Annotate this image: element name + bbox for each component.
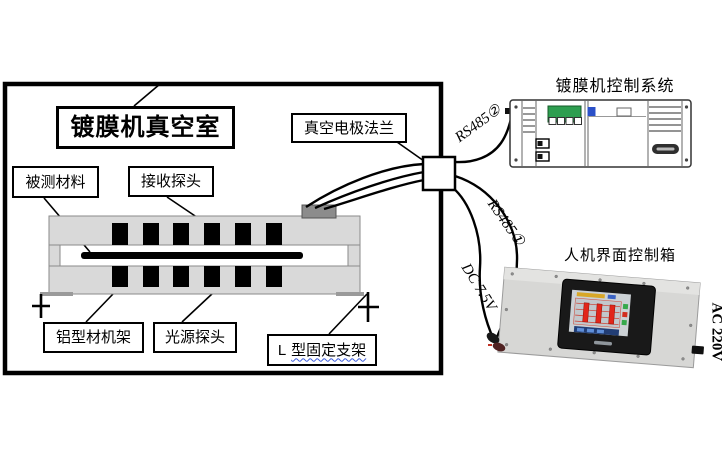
screen-button bbox=[597, 329, 604, 333]
hmi-device bbox=[498, 267, 709, 368]
rail-end-cap-left bbox=[49, 245, 60, 266]
io-connector-pin bbox=[538, 154, 543, 159]
screw bbox=[637, 355, 640, 358]
screw bbox=[549, 348, 552, 351]
indicator-green bbox=[622, 320, 627, 325]
plc-button bbox=[575, 118, 582, 125]
probe-square bbox=[266, 223, 282, 245]
chamber-title: 镀膜机真空室 bbox=[71, 116, 221, 140]
light-source-label-box: 光源探头 bbox=[153, 322, 237, 353]
probe-square bbox=[112, 223, 128, 245]
light-source-label: 光源探头 bbox=[165, 330, 225, 345]
receiver-label-box: 接收探头 bbox=[128, 166, 214, 197]
screw bbox=[685, 105, 688, 108]
plc-led-indicator bbox=[588, 107, 596, 116]
flange-label: 真空电极法兰 bbox=[304, 121, 394, 136]
diagram-canvas: 镀膜机真空室 被测材料 接收探头 铝型材机架 光源探头 L型固定支架 真空电极法… bbox=[0, 0, 726, 450]
material-label: 被测材料 bbox=[25, 175, 85, 190]
probe-square bbox=[143, 266, 159, 287]
plc-device bbox=[510, 100, 691, 167]
screw bbox=[511, 272, 514, 275]
probe-square bbox=[266, 266, 282, 287]
probe-square bbox=[235, 266, 251, 287]
screw bbox=[599, 278, 602, 281]
support-foot-right bbox=[336, 292, 364, 296]
screen-red-bars bbox=[583, 303, 615, 324]
frame-label-box: 铝型材机架 bbox=[43, 322, 144, 353]
plc-brand-text bbox=[657, 148, 675, 151]
probe-square bbox=[143, 223, 159, 245]
plc-tab bbox=[617, 108, 631, 116]
screw bbox=[681, 357, 684, 360]
io-connector-pin bbox=[538, 141, 543, 146]
ac-power-connector bbox=[691, 346, 704, 355]
screw bbox=[642, 282, 645, 285]
plc-button bbox=[549, 118, 556, 125]
probe-square bbox=[173, 223, 189, 245]
probe-square bbox=[204, 266, 220, 287]
probe-square bbox=[173, 266, 189, 287]
plc-button bbox=[558, 118, 565, 125]
rail-end-cap-right bbox=[348, 245, 360, 266]
probe-square bbox=[204, 223, 220, 245]
chamber-title-box: 镀膜机真空室 bbox=[56, 106, 235, 149]
bracket-label-box: L型固定支架 bbox=[267, 334, 377, 366]
screw bbox=[689, 324, 692, 327]
indicator-green bbox=[623, 304, 628, 309]
plug-band bbox=[488, 344, 492, 346]
screen-titlebar-icon bbox=[608, 295, 616, 300]
frame-label: 铝型材机架 bbox=[56, 330, 131, 345]
controller-title: 镀膜机控制系统 bbox=[540, 72, 690, 96]
screen-button bbox=[577, 328, 584, 332]
probe-square bbox=[112, 266, 128, 287]
screen-button bbox=[587, 329, 594, 333]
diagram-art bbox=[0, 0, 726, 450]
material-label-box: 被测材料 bbox=[12, 166, 99, 198]
screw bbox=[505, 308, 508, 311]
receiver-label: 接收探头 bbox=[141, 174, 201, 189]
flange-label-box: 真空电极法兰 bbox=[291, 113, 407, 143]
bracket-label-prefix: L bbox=[278, 343, 286, 358]
bracket-label-main: 型固定支架 bbox=[291, 343, 366, 358]
screw bbox=[514, 105, 517, 108]
support-foot-left bbox=[40, 292, 73, 296]
sample-material-bar bbox=[81, 252, 303, 259]
hmi-title: 人机界面控制箱 bbox=[556, 244, 684, 265]
plc-button bbox=[566, 118, 573, 125]
screw bbox=[593, 351, 596, 354]
screw bbox=[686, 287, 689, 290]
ac-power-label: AC 220V bbox=[708, 303, 725, 361]
electrode-flange-junction bbox=[423, 157, 455, 190]
probe-square bbox=[235, 223, 251, 245]
screw bbox=[514, 158, 517, 161]
screw bbox=[555, 275, 558, 278]
screw bbox=[505, 343, 508, 346]
indicator-red bbox=[622, 312, 627, 317]
screw bbox=[685, 158, 688, 161]
